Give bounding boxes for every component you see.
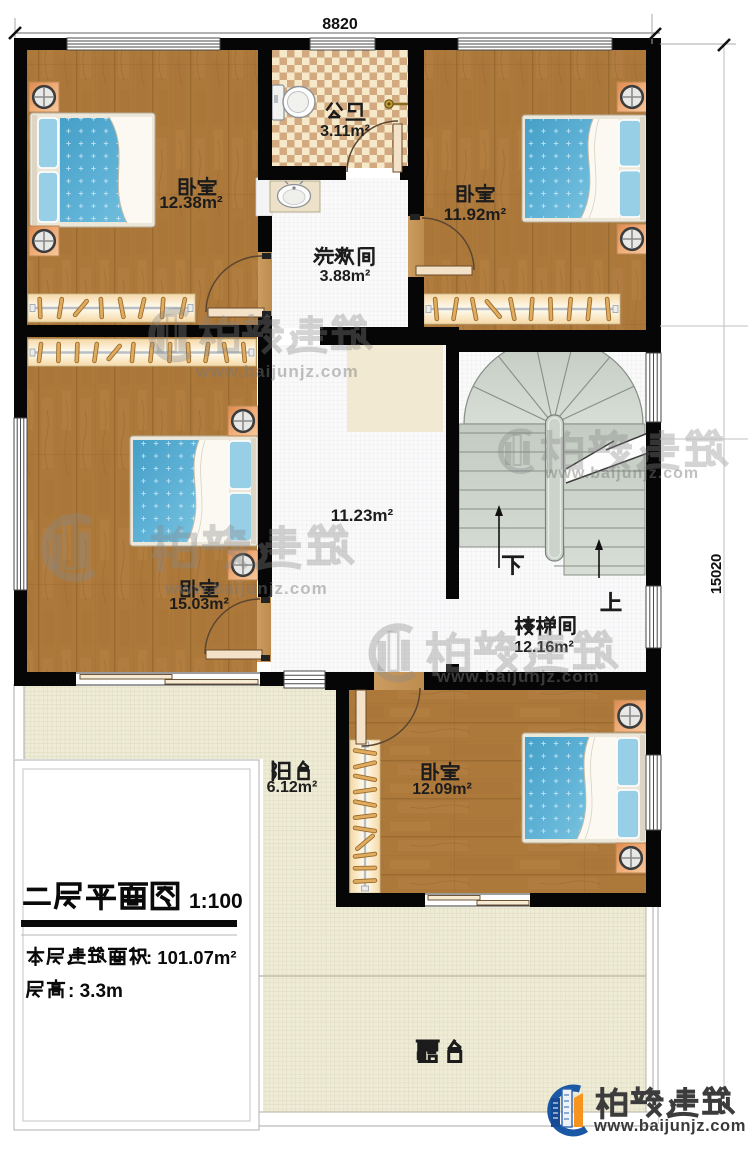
svg-text:www.baijunjz.com: www.baijunjz.com <box>593 1117 746 1135</box>
svg-text:15.03m²: 15.03m² <box>169 596 229 613</box>
svg-text:www.baijunjz.com: www.baijunjz.com <box>436 667 600 686</box>
svg-text:: 3.3m: : 3.3m <box>68 981 123 1002</box>
svg-text:3.11m²: 3.11m² <box>320 123 370 140</box>
svg-text:www.baijunjz.com: www.baijunjz.com <box>195 362 359 381</box>
svg-text:12.09m²: 12.09m² <box>412 781 472 798</box>
svg-text:www.baijunjz.com: www.baijunjz.com <box>164 579 328 598</box>
svg-text:12.38m²: 12.38m² <box>159 193 223 212</box>
svg-text:6.12m²: 6.12m² <box>267 779 318 796</box>
svg-text:11.92m²: 11.92m² <box>444 205 507 224</box>
svg-text:www.baijunjz.com: www.baijunjz.com <box>544 465 699 482</box>
svg-text:3.88m²: 3.88m² <box>320 268 371 285</box>
svg-text:8820: 8820 <box>322 16 358 33</box>
svg-text:1:100: 1:100 <box>189 890 243 913</box>
svg-text:11.23m²: 11.23m² <box>331 506 394 525</box>
svg-text:15020: 15020 <box>708 554 725 594</box>
svg-text:: 101.07m²: : 101.07m² <box>146 947 237 968</box>
